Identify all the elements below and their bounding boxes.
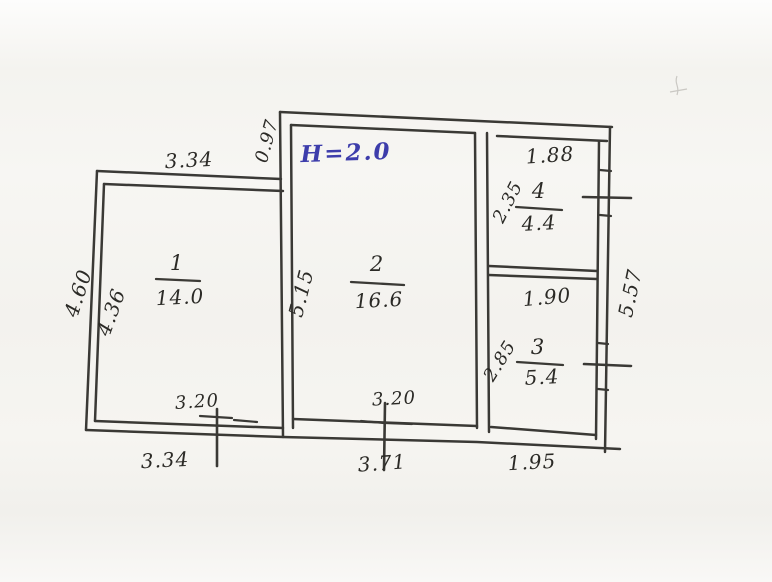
dim-room3-top: 1.90 <box>522 283 572 311</box>
room1-area: 14.0 <box>155 284 205 311</box>
room4-area: 4.4 <box>521 210 557 236</box>
dim-room2-bottom-wall: 3.20 <box>371 387 416 410</box>
scanned-floorplan-page: 1 14.0 2 16.6 4 4.4 3 5.4 H=2.0 3.34 0.9… <box>0 0 772 582</box>
room3-area: 5.4 <box>524 364 560 390</box>
height-note: H=2.0 <box>300 138 392 168</box>
dim-room1-bottom-wall: 3.20 <box>174 390 219 414</box>
room3-number: 3 <box>531 335 545 359</box>
pencil-smudge <box>670 76 687 95</box>
baseline <box>86 430 620 449</box>
room2-area: 16.6 <box>354 287 404 314</box>
room1-number: 1 <box>170 251 184 275</box>
dim-room1-bottom-total: 3.34 <box>140 447 190 474</box>
dim-room4-top: 1.88 <box>525 141 575 168</box>
dim-room1-top: 3.34 <box>164 147 214 174</box>
room2-number: 2 <box>370 252 384 276</box>
dim-room2-bottom-total: 3.71 <box>357 449 407 476</box>
dim-room3-bottom-total: 1.95 <box>507 449 557 476</box>
room4-number: 4 <box>532 179 546 203</box>
